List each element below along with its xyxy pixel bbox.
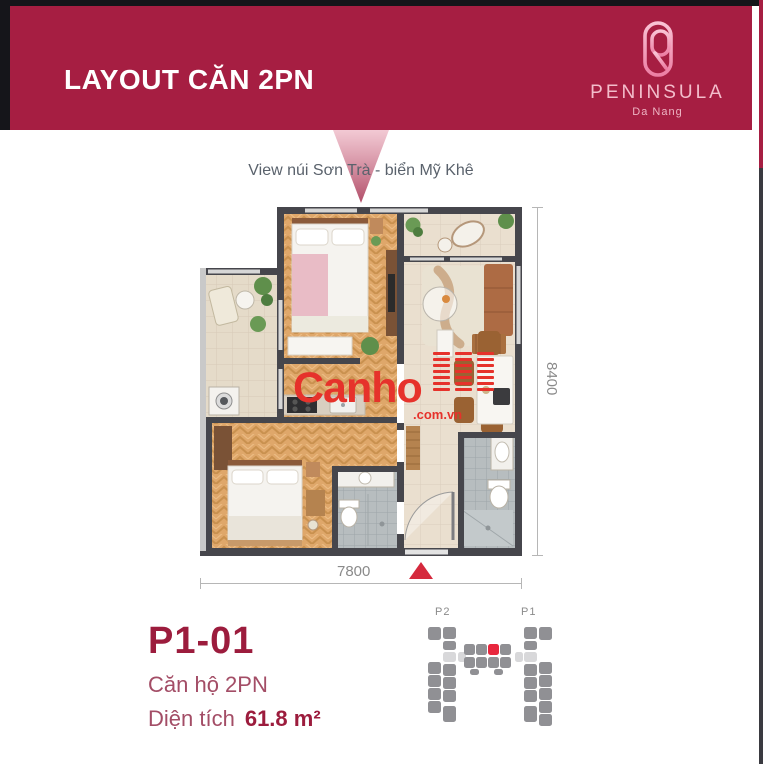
minimap-unit <box>476 657 487 668</box>
minimap-unit <box>539 627 552 640</box>
canho-logo-bar <box>477 388 494 391</box>
canho-logo-bar <box>477 364 494 367</box>
watermark: Canho .com.vn <box>293 350 518 422</box>
minimap-unit <box>539 662 552 674</box>
canho-logo-bar <box>433 388 450 391</box>
canho-logo-bar <box>433 358 450 361</box>
minimap-unit <box>470 669 479 675</box>
page-title: LAYOUT CĂN 2PN <box>64 64 314 96</box>
canho-logo-bar <box>433 364 450 367</box>
minimap-unit <box>464 657 475 668</box>
poster-page: LAYOUT CĂN 2PN PENINSULA Da Nang <box>0 0 763 764</box>
vanity-desk <box>306 490 325 516</box>
canho-logo-bar <box>477 352 494 355</box>
dimension-height-label: 8400 <box>543 362 560 395</box>
canho-logo-bar <box>455 388 472 391</box>
minimap-unit <box>428 675 441 687</box>
minimap-unit <box>428 688 441 700</box>
watermark-suffix: .com.vn <box>413 407 462 422</box>
right-border <box>759 0 763 764</box>
master-wardrobe-tv <box>386 250 397 336</box>
minimap-unit <box>524 652 537 662</box>
minimap-unit <box>500 657 511 668</box>
canho-logo-bar <box>455 382 472 385</box>
minimap-unit <box>494 669 503 675</box>
master-bed <box>292 218 368 332</box>
watermark-name: Canho <box>293 364 422 413</box>
building-minimap: P2 P1 <box>422 600 562 750</box>
canho-logo-bar <box>455 376 472 379</box>
brand-logo: PENINSULA Da Nang <box>575 20 740 118</box>
unit-type: Căn hộ 2PN <box>148 672 268 698</box>
minimap-unit <box>539 714 552 726</box>
minimap-unit <box>443 706 456 722</box>
view-label: View núi Sơn Trà - biển Mỹ Khê <box>200 162 522 180</box>
minimap-unit <box>443 690 456 702</box>
minimap-unit <box>524 706 537 722</box>
minimap-unit <box>443 664 456 676</box>
canho-logo-bar <box>433 352 450 355</box>
minimap-unit <box>524 677 537 689</box>
minimap-unit <box>443 677 456 689</box>
minimap-unit <box>476 644 487 655</box>
minimap-unit <box>524 690 537 702</box>
canho-logo-bar <box>477 382 494 385</box>
minimap-unit <box>488 657 499 668</box>
minimap-unit <box>524 627 537 639</box>
unit-area-value: 61.8 m² <box>245 706 321 731</box>
brand-name: PENINSULA <box>575 82 740 104</box>
minimap-unit <box>428 627 441 640</box>
minimap-unit <box>464 644 475 655</box>
canho-logo-bar <box>433 376 450 379</box>
minimap-unit <box>539 701 552 713</box>
minimap-unit <box>443 627 456 639</box>
dimension-line-horizontal <box>200 583 522 584</box>
canho-logo-bar <box>455 358 472 361</box>
canho-logo-bar <box>455 352 472 355</box>
minimap-unit <box>428 701 441 713</box>
brand-location: Da Nang <box>575 106 740 118</box>
unit-area: Diện tích61.8 m² <box>148 706 321 732</box>
stool <box>308 520 318 530</box>
minimap-unit <box>428 662 441 674</box>
minimap-unit <box>443 641 456 650</box>
minimap-units <box>422 600 562 750</box>
nightstand <box>306 462 320 477</box>
unit-area-label: Diện tích <box>148 706 235 731</box>
left-border <box>0 0 10 130</box>
plant-icon <box>371 236 381 246</box>
minimap-unit <box>500 644 511 655</box>
canho-logo-bar <box>455 364 472 367</box>
canho-logo-bar <box>433 382 450 385</box>
dimension-line-vertical <box>537 207 538 556</box>
minimap-unit <box>524 641 537 650</box>
minimap-unit <box>539 675 552 687</box>
canho-logo-bar <box>455 370 472 373</box>
canho-logo-bar <box>433 370 450 373</box>
header-banner: LAYOUT CĂN 2PN PENINSULA Da Nang <box>10 6 752 130</box>
canho-logo-bar <box>477 358 494 361</box>
dimension-width-label: 7800 <box>337 563 370 580</box>
entrance-marker-icon <box>409 562 433 579</box>
unit-code: P1-01 <box>148 620 254 663</box>
nightstand <box>370 218 383 234</box>
minimap-unit <box>443 652 456 662</box>
minimap-unit <box>515 652 523 662</box>
minimap-unit <box>539 688 552 700</box>
canho-logo-bar <box>477 370 494 373</box>
minimap-unit <box>524 664 537 676</box>
canho-logo-bar <box>477 376 494 379</box>
peninsula-p-icon <box>635 20 681 78</box>
minimap-unit-highlight <box>488 644 499 655</box>
canho-logo-bars <box>433 352 494 391</box>
